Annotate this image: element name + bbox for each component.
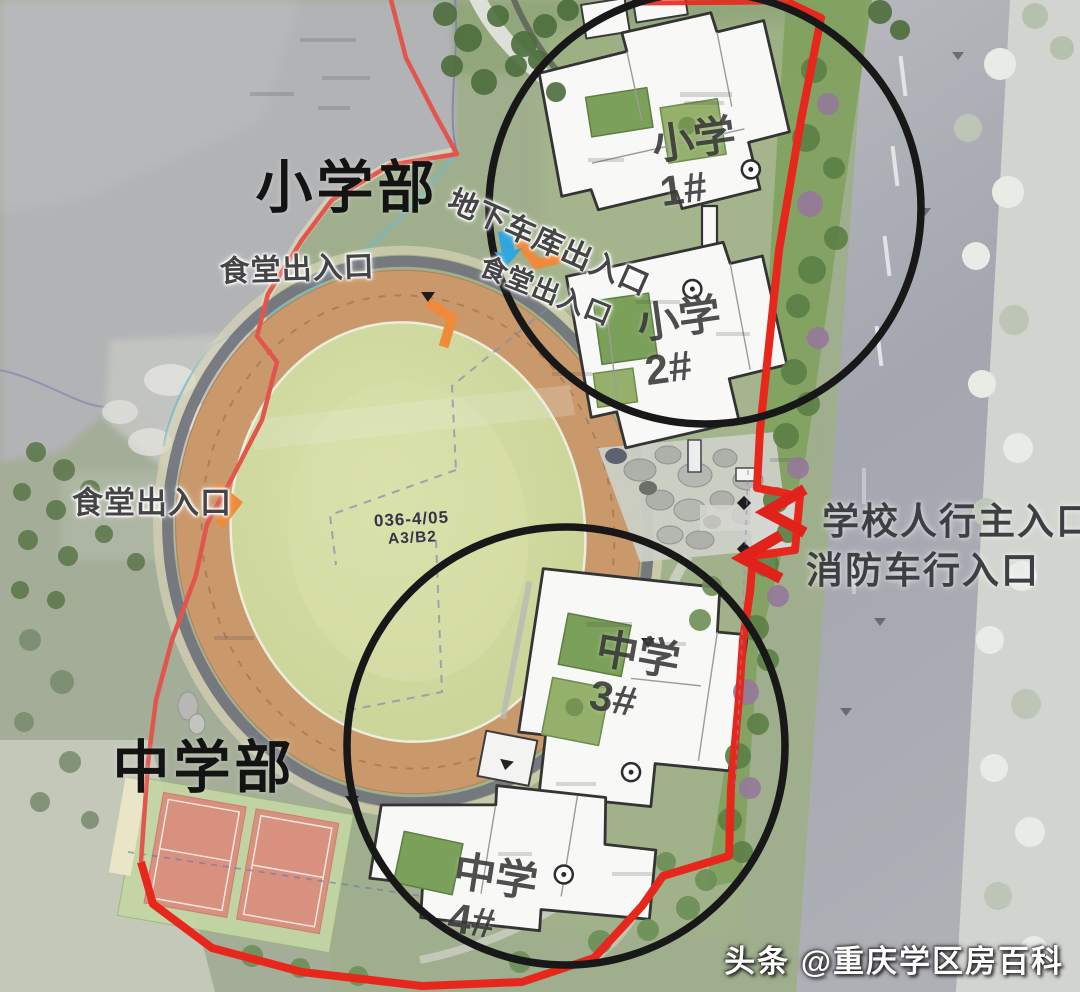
school-main-entrance-label: 学校人行主入口 [822,491,1080,545]
building-number: 2# [640,341,696,395]
building-name: 小学 [649,111,739,169]
building-number: 1# [655,162,711,216]
plot-code-line2: A3/B2 [375,528,451,551]
building-label-middle-4: 中学 4# [443,847,541,953]
canteen-entrance-southwest-label: 食堂出入口 [72,478,232,523]
building-number: 3# [584,671,641,726]
watermark: 头条 @重庆学区房百科 [724,936,1064,981]
plot-code-label: 036-4/05 A3/B2 [373,508,450,551]
fire-truck-entrance-label: 消防车行入口 [806,540,1040,594]
primary-section-label: 小学部 [256,142,439,224]
school-site-plan: 小学部 中学部 食堂出入口 食堂出入口 地下车库出入口 食堂出入口 学校人行主入… [0,0,1080,992]
building-label-middle-3: 中学 3# [584,624,683,731]
watermark-account: @重庆学区房百科 [801,944,1064,979]
building-label-primary-2: 小学 2# [634,290,730,395]
building-label-primary-1: 小学 1# [649,111,745,216]
watermark-source: 头条 [724,944,790,979]
corridor-2-plaza [688,440,701,472]
building-name: 小学 [634,290,724,348]
building-number: 4# [443,893,500,947]
middle-section-label: 中学部 [113,722,296,804]
canteen-entrance-west-label: 食堂出入口 [219,241,375,290]
